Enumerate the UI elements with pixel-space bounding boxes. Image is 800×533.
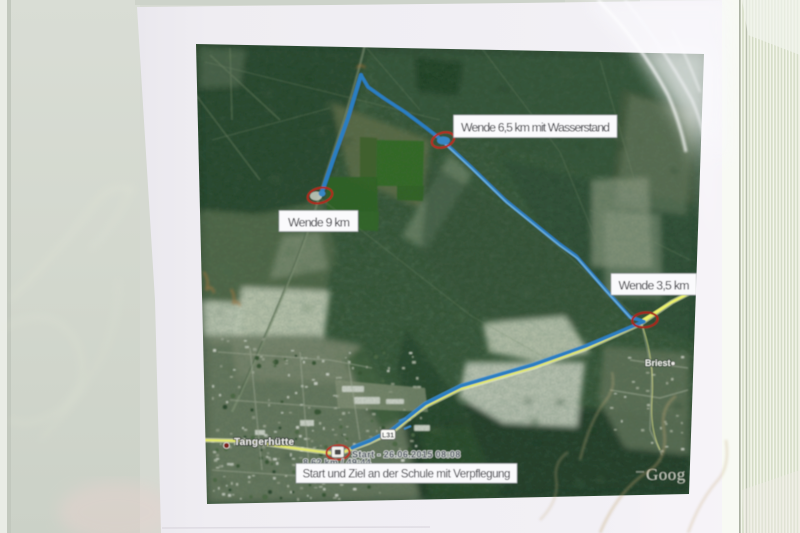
svg-text:Wende 9 km: Wende 9 km [288,216,350,230]
svg-text:Start und Ziel an der Schule m: Start und Ziel an der Schule mit Verpfle… [303,468,511,481]
svg-text:L31: L31 [382,432,394,439]
svg-text:Wende 3,5 km: Wende 3,5 km [619,279,690,293]
svg-text:Briest: Briest [645,358,671,368]
svg-text:Tangerhütte: Tangerhütte [234,437,294,448]
svg-text:Wende 6,5 km mit Wasserstand: Wende 6,5 km mit Wasserstand [461,121,610,135]
